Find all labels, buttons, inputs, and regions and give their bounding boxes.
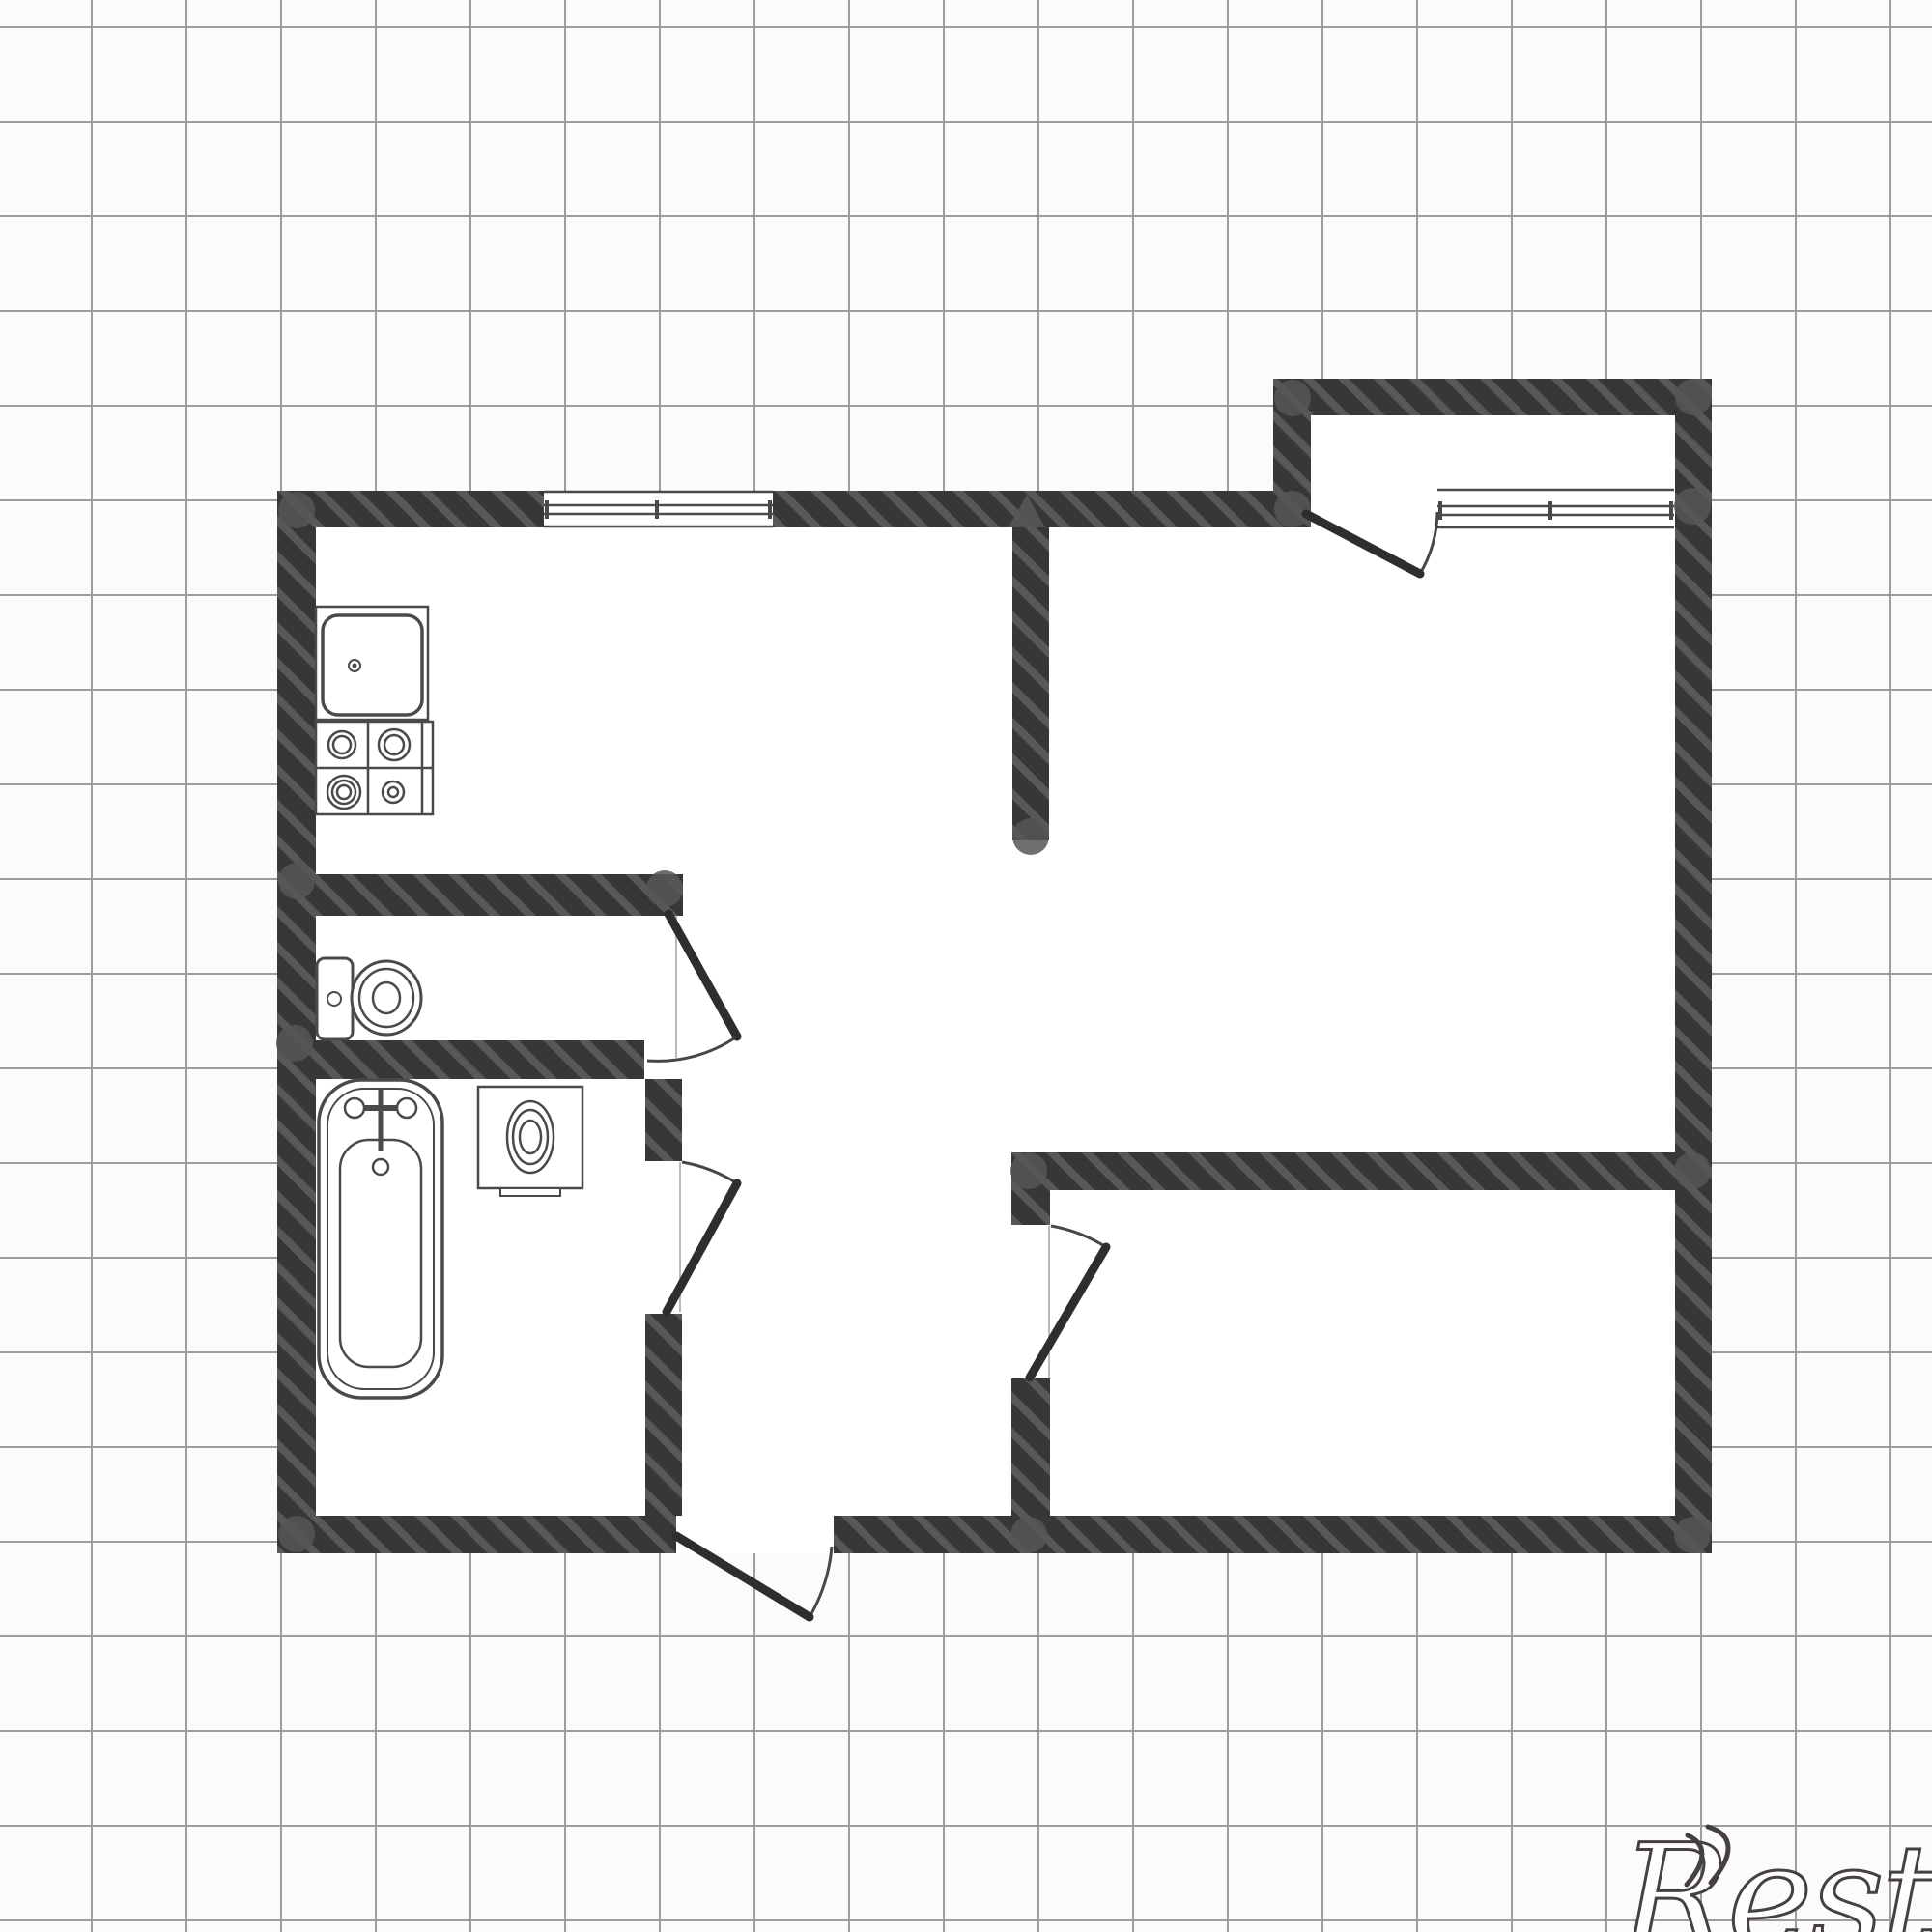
wall-joint-marker — [1674, 488, 1711, 525]
exterior-wall-bottom-left — [277, 1516, 676, 1553]
balcony-window — [1437, 490, 1674, 527]
exterior-wall-top-kitchen-a — [277, 491, 544, 527]
exterior-wall-top-right — [1273, 379, 1712, 415]
wall-joint-marker — [1012, 818, 1049, 855]
kitchen-sink-basin — [323, 615, 422, 715]
divider-kitchen-toilet — [316, 874, 683, 916]
bedroom-left-wall-stub — [1011, 1190, 1050, 1225]
bedroom-top-wall — [1011, 1152, 1675, 1190]
wall-joint-marker — [1674, 1517, 1711, 1553]
plan-graphics — [276, 379, 1712, 1617]
floorplan-screenshot: Restate — [0, 0, 1932, 1932]
bathtub-drain — [373, 1159, 388, 1175]
bathtub-tap-knob — [345, 1098, 364, 1118]
exterior-wall-left — [277, 491, 316, 1553]
wall-joint-marker — [1675, 379, 1712, 415]
wall-joint-marker — [278, 492, 315, 528]
toilet-flush-button — [327, 992, 341, 1006]
wall-joint-marker — [646, 870, 683, 907]
bathroom-right-wall-lower — [645, 1314, 682, 1516]
wall-joint-marker — [1674, 1152, 1711, 1189]
main-floor-area — [277, 491, 1712, 1553]
wall-joint-marker — [1010, 1517, 1047, 1553]
wall-joint-marker — [278, 1516, 315, 1552]
divider-toilet-bathroom — [316, 1040, 644, 1079]
exterior-wall-bottom-right — [834, 1516, 1712, 1553]
restate-watermark: Restate — [1618, 1814, 1932, 1932]
kitchen-sink-drain-dot — [353, 664, 357, 668]
wall-joint-marker — [1010, 1152, 1047, 1189]
watermark-text: Restate — [1618, 1814, 1932, 1932]
toilet-bowl — [352, 961, 421, 1035]
floor-plan: Restate — [0, 0, 1932, 1932]
wall-joint-marker — [278, 863, 315, 899]
washing-machine-base — [500, 1188, 560, 1196]
bathroom-right-wall-upper — [645, 1079, 682, 1161]
bedroom-left-wall-lower — [1011, 1378, 1050, 1516]
exterior-wall-right — [1675, 379, 1712, 1553]
partition-kitchen-living — [1012, 527, 1049, 840]
wall-joint-marker — [276, 1025, 313, 1062]
wall-joint-marker — [1274, 491, 1311, 527]
bathtub-tap-knob — [397, 1098, 416, 1118]
entrance-door-swing-arc — [810, 1547, 832, 1617]
wall-joint-marker — [1274, 380, 1311, 416]
